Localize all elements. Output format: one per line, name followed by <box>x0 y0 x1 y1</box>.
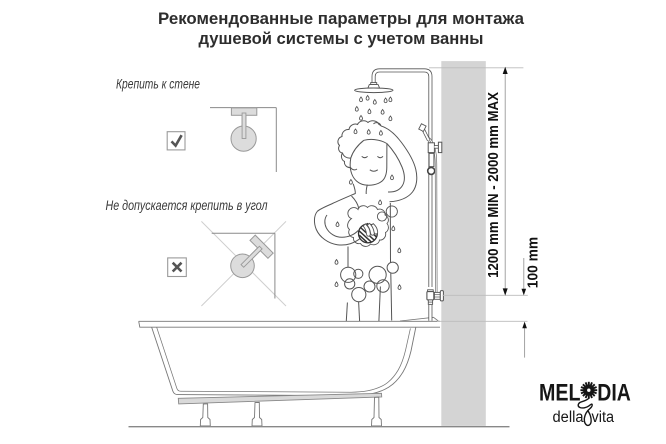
svg-text:DIA: DIA <box>597 380 631 407</box>
svg-text:Крепить к стене: Крепить к стене <box>116 77 200 92</box>
svg-text:100 mm: 100 mm <box>525 237 542 288</box>
svg-text:Рекомендованные параметры для: Рекомендованные параметры для монтажа <box>158 10 525 28</box>
svg-text:Не допускается крепить в угол: Не допускается крепить в угол <box>106 198 268 213</box>
svg-text:della: della <box>553 409 584 426</box>
svg-text:vita: vita <box>592 409 615 426</box>
svg-text:1200 mm MIN - 2000 mm MAX: 1200 mm MIN - 2000 mm MAX <box>484 92 501 278</box>
svg-text:MEL: MEL <box>539 380 581 407</box>
svg-text:душевой системы с учетом ванны: душевой системы с учетом ванны <box>199 30 484 48</box>
